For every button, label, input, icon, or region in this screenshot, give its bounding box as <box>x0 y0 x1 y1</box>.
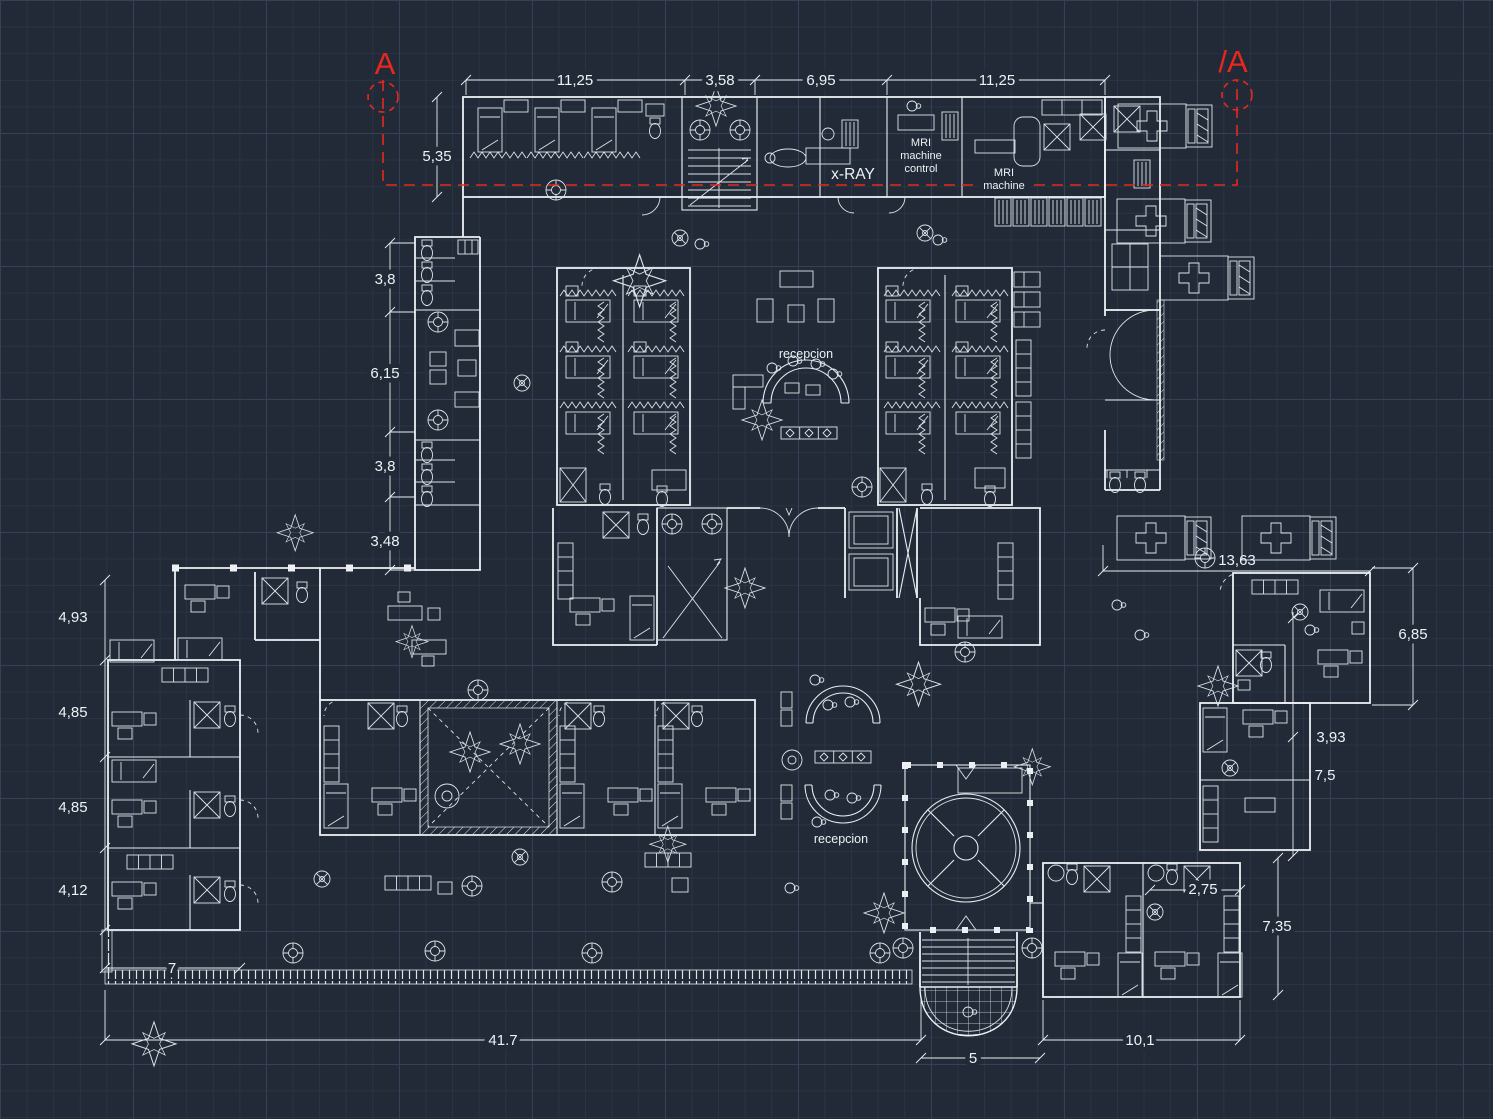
cabinet-icon <box>1112 244 1148 290</box>
reception-desk-icon <box>733 356 849 440</box>
reception-lower-label: recepcion <box>814 832 868 846</box>
dim-farleft-4: 4,12 <box>58 882 87 899</box>
section-marker-a2: /A <box>1218 44 1248 79</box>
room-labels: x-RAY MRI machine control MRI machine re… <box>779 137 1025 846</box>
reception-desk-icon <box>781 675 881 827</box>
storage-icon <box>1134 160 1150 188</box>
lounge-icon <box>428 312 479 430</box>
dim-left-3: 3,8 <box>375 458 396 475</box>
mri-control-label: MRI <box>911 137 931 149</box>
cad-canvas: A /A 11,25 3,58 6,95 11,25 5,35 3,8 6,15… <box>0 0 1493 1119</box>
dim-right-room: 6,85 <box>1398 626 1427 643</box>
dim-right-mid-a: 3,93 <box>1316 729 1345 746</box>
dim-pool: 5 <box>969 1050 977 1067</box>
dim-top-3: 6,95 <box>806 72 835 89</box>
dim-farleft-1: 4,93 <box>58 609 87 626</box>
xray-label: x-RAY <box>831 166 875 183</box>
walls <box>102 97 1370 1036</box>
palm-tree-icon <box>396 625 541 808</box>
mri-machine-label: MRI <box>994 167 1014 179</box>
seat-row-icon <box>995 198 1101 226</box>
mri-machine-icon <box>975 100 1106 166</box>
dim-bottom-total: 41.7 <box>488 1032 517 1049</box>
dim-br-inner: 2,75 <box>1188 881 1217 898</box>
exam-bed-icon <box>470 100 664 158</box>
rotunda-icon <box>912 794 1020 902</box>
dim-left-4: 3,48 <box>370 533 399 550</box>
dim-porch: 7 <box>168 960 176 977</box>
dim-top-2: 3,58 <box>705 72 734 89</box>
mri-machine-label: machine <box>983 180 1025 192</box>
reception-upper-label: recepcion <box>779 347 833 361</box>
stairs-top-icon <box>688 86 751 208</box>
section-marker-a: A <box>375 46 396 81</box>
dim-bottom-right: 10,1 <box>1125 1032 1154 1049</box>
dim-farleft-3: 4,85 <box>58 799 87 816</box>
toilet-stalls-icon <box>415 240 478 507</box>
mri-control-label: control <box>904 163 937 175</box>
furniture <box>110 86 1364 1067</box>
dim-right-top: 13,63 <box>1218 552 1256 569</box>
hospital-floor-plan: A /A 11,25 3,58 6,95 11,25 5,35 3,8 6,15… <box>0 0 1493 1119</box>
waiting-seats-icon <box>757 271 834 322</box>
dimension-annotations: 11,25 3,58 6,95 11,25 5,35 3,8 6,15 3,8 … <box>58 72 1427 1067</box>
dim-left-1: 3,8 <box>375 271 396 288</box>
mri-control-label: machine <box>900 150 942 162</box>
dim-top-1: 11,25 <box>557 72 593 89</box>
dim-br-height: 7,35 <box>1262 918 1291 935</box>
mri-control-desk-icon <box>898 101 958 140</box>
dim-left-2: 6,15 <box>370 365 399 382</box>
dim-upper-left: 5,35 <box>422 148 451 165</box>
dim-right-mid-b: 7,5 <box>1315 767 1336 784</box>
dim-farleft-2: 4,85 <box>58 704 87 721</box>
xray-table-icon <box>765 120 858 167</box>
ward-beds-icon <box>880 286 1008 507</box>
dim-top-4: 11,25 <box>979 72 1015 89</box>
